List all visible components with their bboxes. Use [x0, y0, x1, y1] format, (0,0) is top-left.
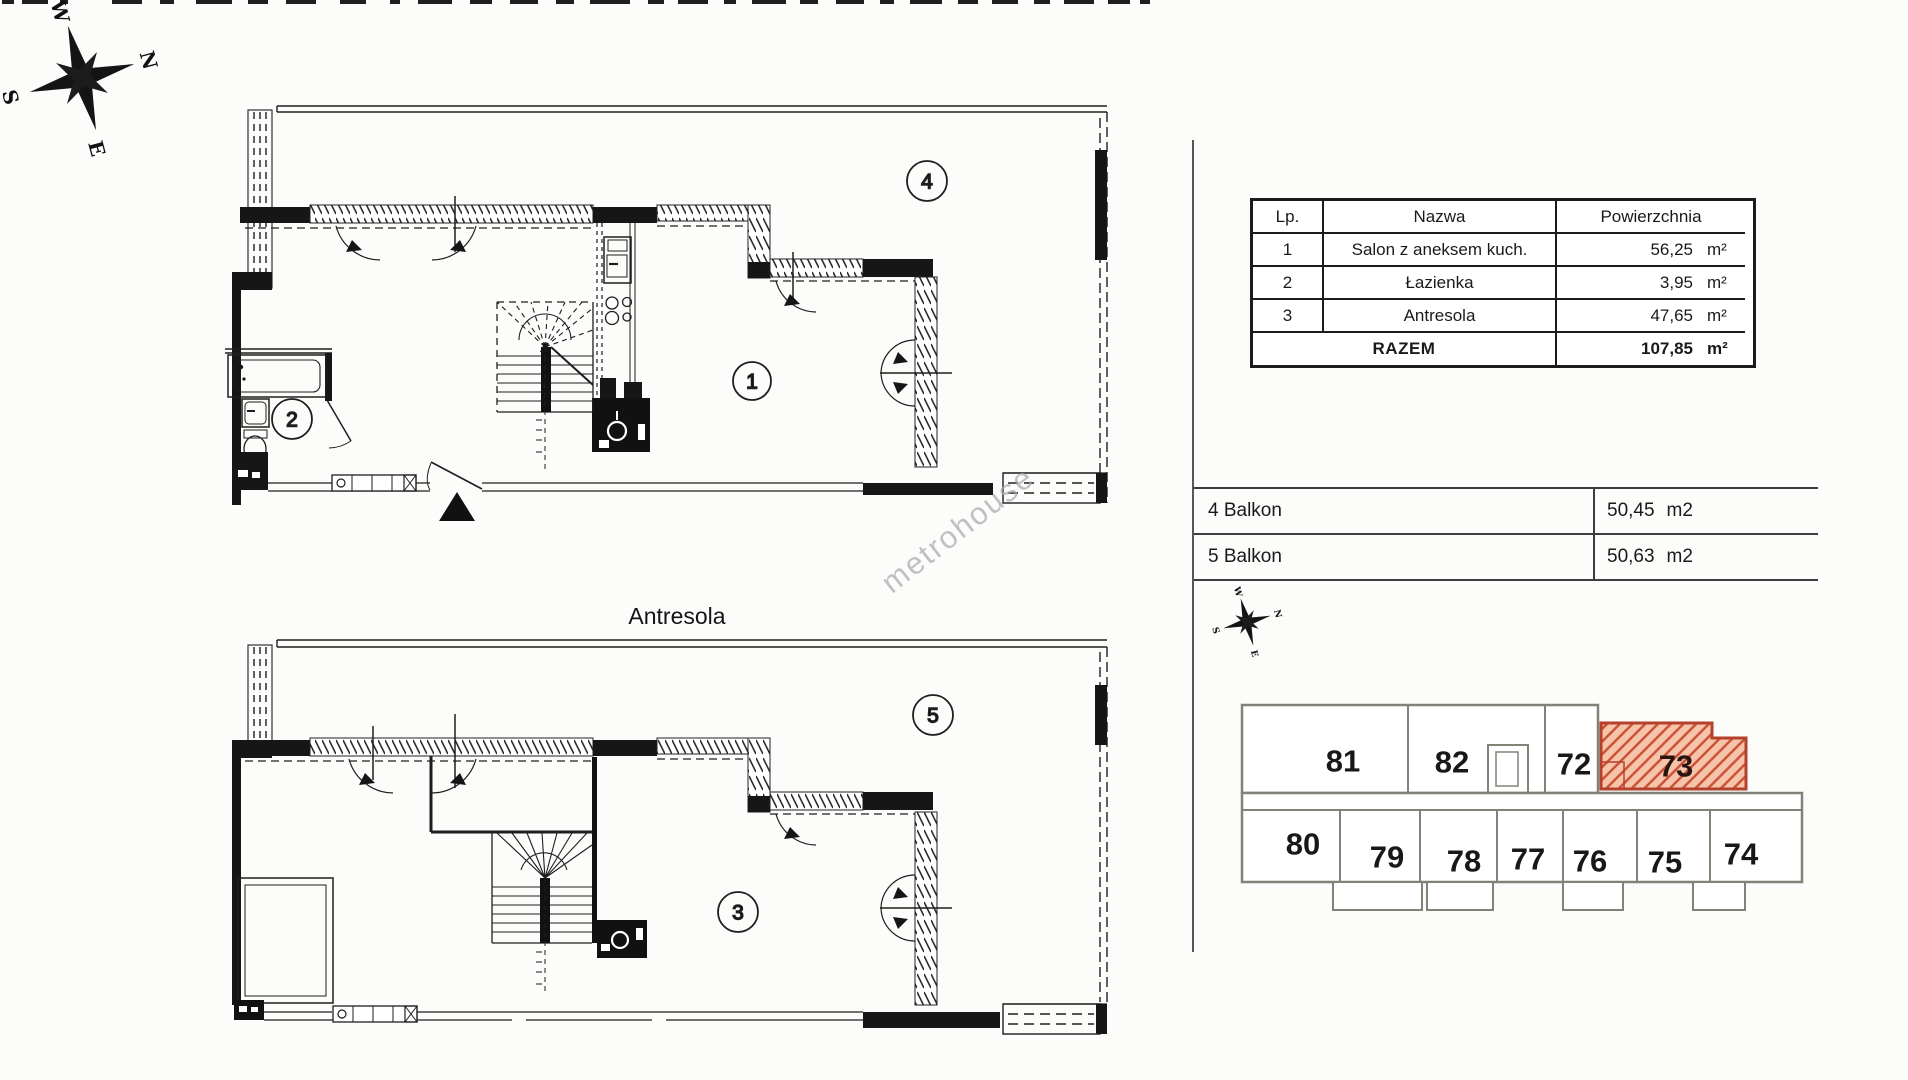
compass-w-label: W: [45, 0, 74, 26]
compass-w-label: W: [1231, 585, 1244, 599]
room-label-living: 1: [746, 371, 758, 394]
balcony-unit: m2: [1667, 500, 1693, 522]
area-table-header: Lp. Nazwa Powierzchnia: [1253, 201, 1753, 234]
row-area: 56,25 m²: [1557, 234, 1745, 267]
balcony-area: 50,63 m2: [1593, 535, 1818, 579]
row-name: Salon z aneksem kuch.: [1324, 234, 1557, 267]
row-area: 3,95 m²: [1557, 267, 1745, 300]
balcony-row: 4 Balkon 50,45 m2: [1194, 487, 1818, 533]
compass-s-label: S: [0, 87, 24, 107]
floorplan-page: N E S W: [0, 0, 1908, 1080]
total-value: 107,85: [1641, 339, 1693, 359]
area-table-row: 2 Łazienka 3,95 m²: [1253, 267, 1753, 300]
unit-label-73: 73: [1659, 749, 1693, 784]
unit-label-74: 74: [1724, 837, 1759, 872]
total-area: 107,85 m²: [1557, 333, 1745, 365]
room-label-bath: 2: [286, 409, 298, 432]
unit-label-81: 81: [1326, 744, 1360, 779]
compass-n-label: N: [1271, 609, 1283, 620]
room-label-mezzanine: 3: [732, 902, 744, 925]
unit-label-77: 77: [1511, 842, 1545, 877]
balcony-label: 4 Balkon: [1194, 489, 1593, 533]
unit-label-76: 76: [1573, 844, 1607, 879]
lower-plan-caption: Antresola: [597, 603, 757, 630]
area-table-total-row: RAZEM 107,85 m²: [1253, 333, 1753, 365]
area-unit: m²: [1707, 240, 1731, 260]
row-lp: 3: [1253, 300, 1324, 333]
balcony-unit: m2: [1667, 546, 1693, 568]
compass-rose-small: N E S W: [1200, 576, 1291, 666]
row-lp: 1: [1253, 234, 1324, 267]
compass-s-label: S: [1209, 626, 1220, 635]
compass-rose-main: N E S W: [0, 0, 181, 177]
unit-label-78: 78: [1447, 844, 1481, 879]
row-area: 47,65 m²: [1557, 300, 1745, 333]
area-value: 56,25: [1650, 240, 1693, 260]
row-name: Antresola: [1324, 300, 1557, 333]
row-lp: 2: [1253, 267, 1324, 300]
balcony-label: 5 Balkon: [1194, 535, 1593, 579]
area-table-row: 1 Salon z aneksem kuch. 56,25 m²: [1253, 234, 1753, 267]
area-unit: m²: [1707, 306, 1731, 326]
area-value: 3,95: [1660, 273, 1693, 293]
room-label-balcony4: 4: [921, 171, 933, 194]
total-label: RAZEM: [1253, 333, 1557, 365]
compass-e-label: E: [83, 138, 110, 159]
site-plan: 81 82 72 73 80 79 78 77 76 75 74: [1242, 705, 1802, 910]
floor-plan-upper: 1 2 4: [225, 106, 1107, 521]
compass-e-label: E: [1248, 649, 1259, 658]
balcony-area: 50,45 m2: [1593, 489, 1818, 533]
area-value: 47,65: [1650, 306, 1693, 326]
header-name: Nazwa: [1324, 201, 1557, 234]
header-lp: Lp.: [1253, 201, 1324, 234]
header-area: Powierzchnia: [1557, 201, 1745, 234]
unit-label-82: 82: [1435, 745, 1469, 780]
balcony-table: 4 Balkon 50,45 m2 5 Balkon 50,63 m2: [1194, 487, 1818, 581]
unit-label-72: 72: [1557, 747, 1591, 782]
unit-label-79: 79: [1370, 840, 1404, 875]
area-table: Lp. Nazwa Powierzchnia 1 Salon z aneksem…: [1250, 198, 1756, 368]
balcony-value: 50,63: [1607, 546, 1655, 568]
unit-label-80: 80: [1286, 827, 1320, 862]
room-label-balcony5: 5: [927, 705, 939, 728]
compass-n-label: N: [135, 48, 163, 72]
balcony-row: 5 Balkon 50,63 m2: [1194, 533, 1818, 581]
row-name: Łazienka: [1324, 267, 1557, 300]
balcony-value: 50,45: [1607, 500, 1655, 522]
unit-label-75: 75: [1648, 845, 1682, 880]
area-table-row: 3 Antresola 47,65 m²: [1253, 300, 1753, 333]
total-unit: m²: [1707, 339, 1731, 359]
area-unit: m²: [1707, 273, 1731, 293]
floor-plan-lower: 3 5: [232, 640, 1107, 1034]
